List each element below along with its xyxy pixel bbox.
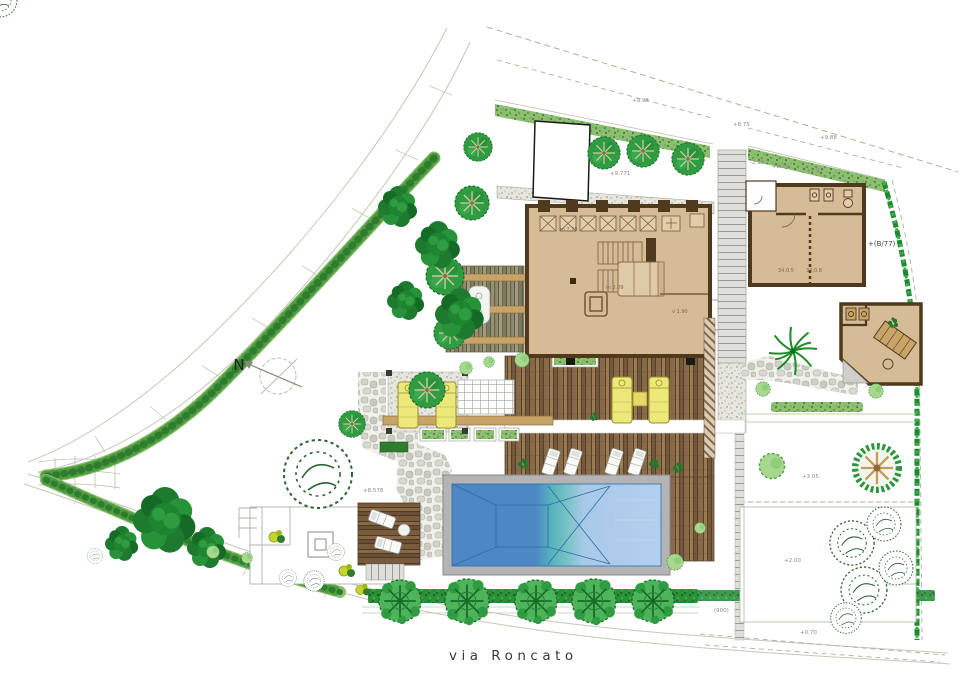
- compass-chord: [261, 359, 297, 394]
- outline-shrub: [87, 548, 102, 563]
- reference-label: (900): [714, 608, 729, 614]
- shrub: [484, 357, 495, 368]
- row-tree: [445, 579, 489, 625]
- sauna-building: [841, 304, 921, 384]
- row-tree: [632, 580, 674, 624]
- compass-circle: [260, 358, 296, 394]
- room-label: m 2.28: [560, 227, 578, 233]
- hedge-east-garden-strip: [771, 402, 863, 412]
- elevation-label: -2.98: [750, 160, 765, 166]
- row-tree: [515, 580, 557, 624]
- outline-shrub: [304, 571, 324, 591]
- shrub: [460, 362, 473, 375]
- room-label: 34.0.8: [806, 268, 822, 274]
- large-outline-tree: [284, 440, 352, 508]
- shrub: [667, 554, 683, 570]
- elevation-label: +9.98: [632, 98, 649, 104]
- row-tree: [379, 580, 421, 624]
- tree-canopy: [672, 143, 704, 175]
- guest-house: [746, 181, 864, 285]
- elevation-label: +8.30: [772, 164, 789, 170]
- swimming-pool: [443, 475, 670, 575]
- elevation-label: +2.00: [784, 558, 801, 564]
- elevation-label: +9.88: [820, 135, 837, 141]
- pergola-grid-patio: [458, 380, 514, 414]
- pine-tree: [105, 526, 138, 561]
- elevation-label: +0.70: [800, 630, 817, 636]
- shrub: [207, 546, 220, 559]
- sauna-table: [883, 359, 893, 369]
- tree-canopy: [588, 137, 620, 169]
- row-tree: [572, 579, 616, 625]
- elevation-label: +8.578: [363, 488, 384, 494]
- tree-canopy: [409, 372, 445, 408]
- shrub: [759, 453, 784, 478]
- shrub: [756, 382, 770, 396]
- site-plan-canvas: N via Roncato +(B/77) +9.98 +8.75 +9.88 …: [0, 0, 976, 691]
- main-house: [527, 200, 718, 356]
- sofa: [618, 262, 664, 296]
- elevation-label: +3.05: [802, 474, 819, 480]
- guest-house-porch: [746, 181, 776, 211]
- outline-tree: [831, 603, 862, 634]
- room-label: v 1.90: [672, 309, 688, 315]
- outline-shrub: [328, 544, 345, 561]
- pine-tree: [387, 281, 424, 320]
- outline-shrub: [0, 0, 17, 17]
- shrub: [695, 523, 706, 534]
- shrub: [869, 384, 883, 398]
- elevation-label: +8.75: [733, 122, 750, 128]
- shrub: [515, 353, 529, 367]
- outline-shrub: [280, 570, 297, 587]
- elevation-label: +8.97: [806, 168, 823, 174]
- street-label: via Roncato: [449, 648, 578, 664]
- tree-canopy: [464, 133, 493, 162]
- column: [570, 278, 576, 284]
- pool-side-deck: [668, 477, 714, 561]
- stairs-east-upper: [718, 150, 746, 363]
- tree-canopy: [455, 186, 489, 220]
- star-branch-tree: [855, 446, 899, 490]
- tree-canopy: [627, 135, 659, 167]
- garage: [533, 121, 590, 201]
- lower-wood-deck: [358, 503, 420, 580]
- room-label: m 2.09: [606, 285, 624, 291]
- tree-canopy: [339, 411, 366, 438]
- room-label: 34.0.5: [778, 268, 794, 274]
- north-label: N: [233, 356, 244, 374]
- lawn-faint-lines: [742, 414, 916, 422]
- stairs-ramp-east: [704, 318, 715, 458]
- elevation-label: +9.771: [610, 171, 630, 177]
- shrub: [242, 553, 253, 564]
- outline-tree: [879, 551, 913, 585]
- outline-tree: [867, 507, 901, 541]
- north-arrow: [244, 358, 302, 394]
- site-plan-page: N via Roncato +(B/77) +9.98 +8.75 +9.88 …: [0, 0, 976, 691]
- parcel-ref-label: +(B/77): [868, 240, 896, 248]
